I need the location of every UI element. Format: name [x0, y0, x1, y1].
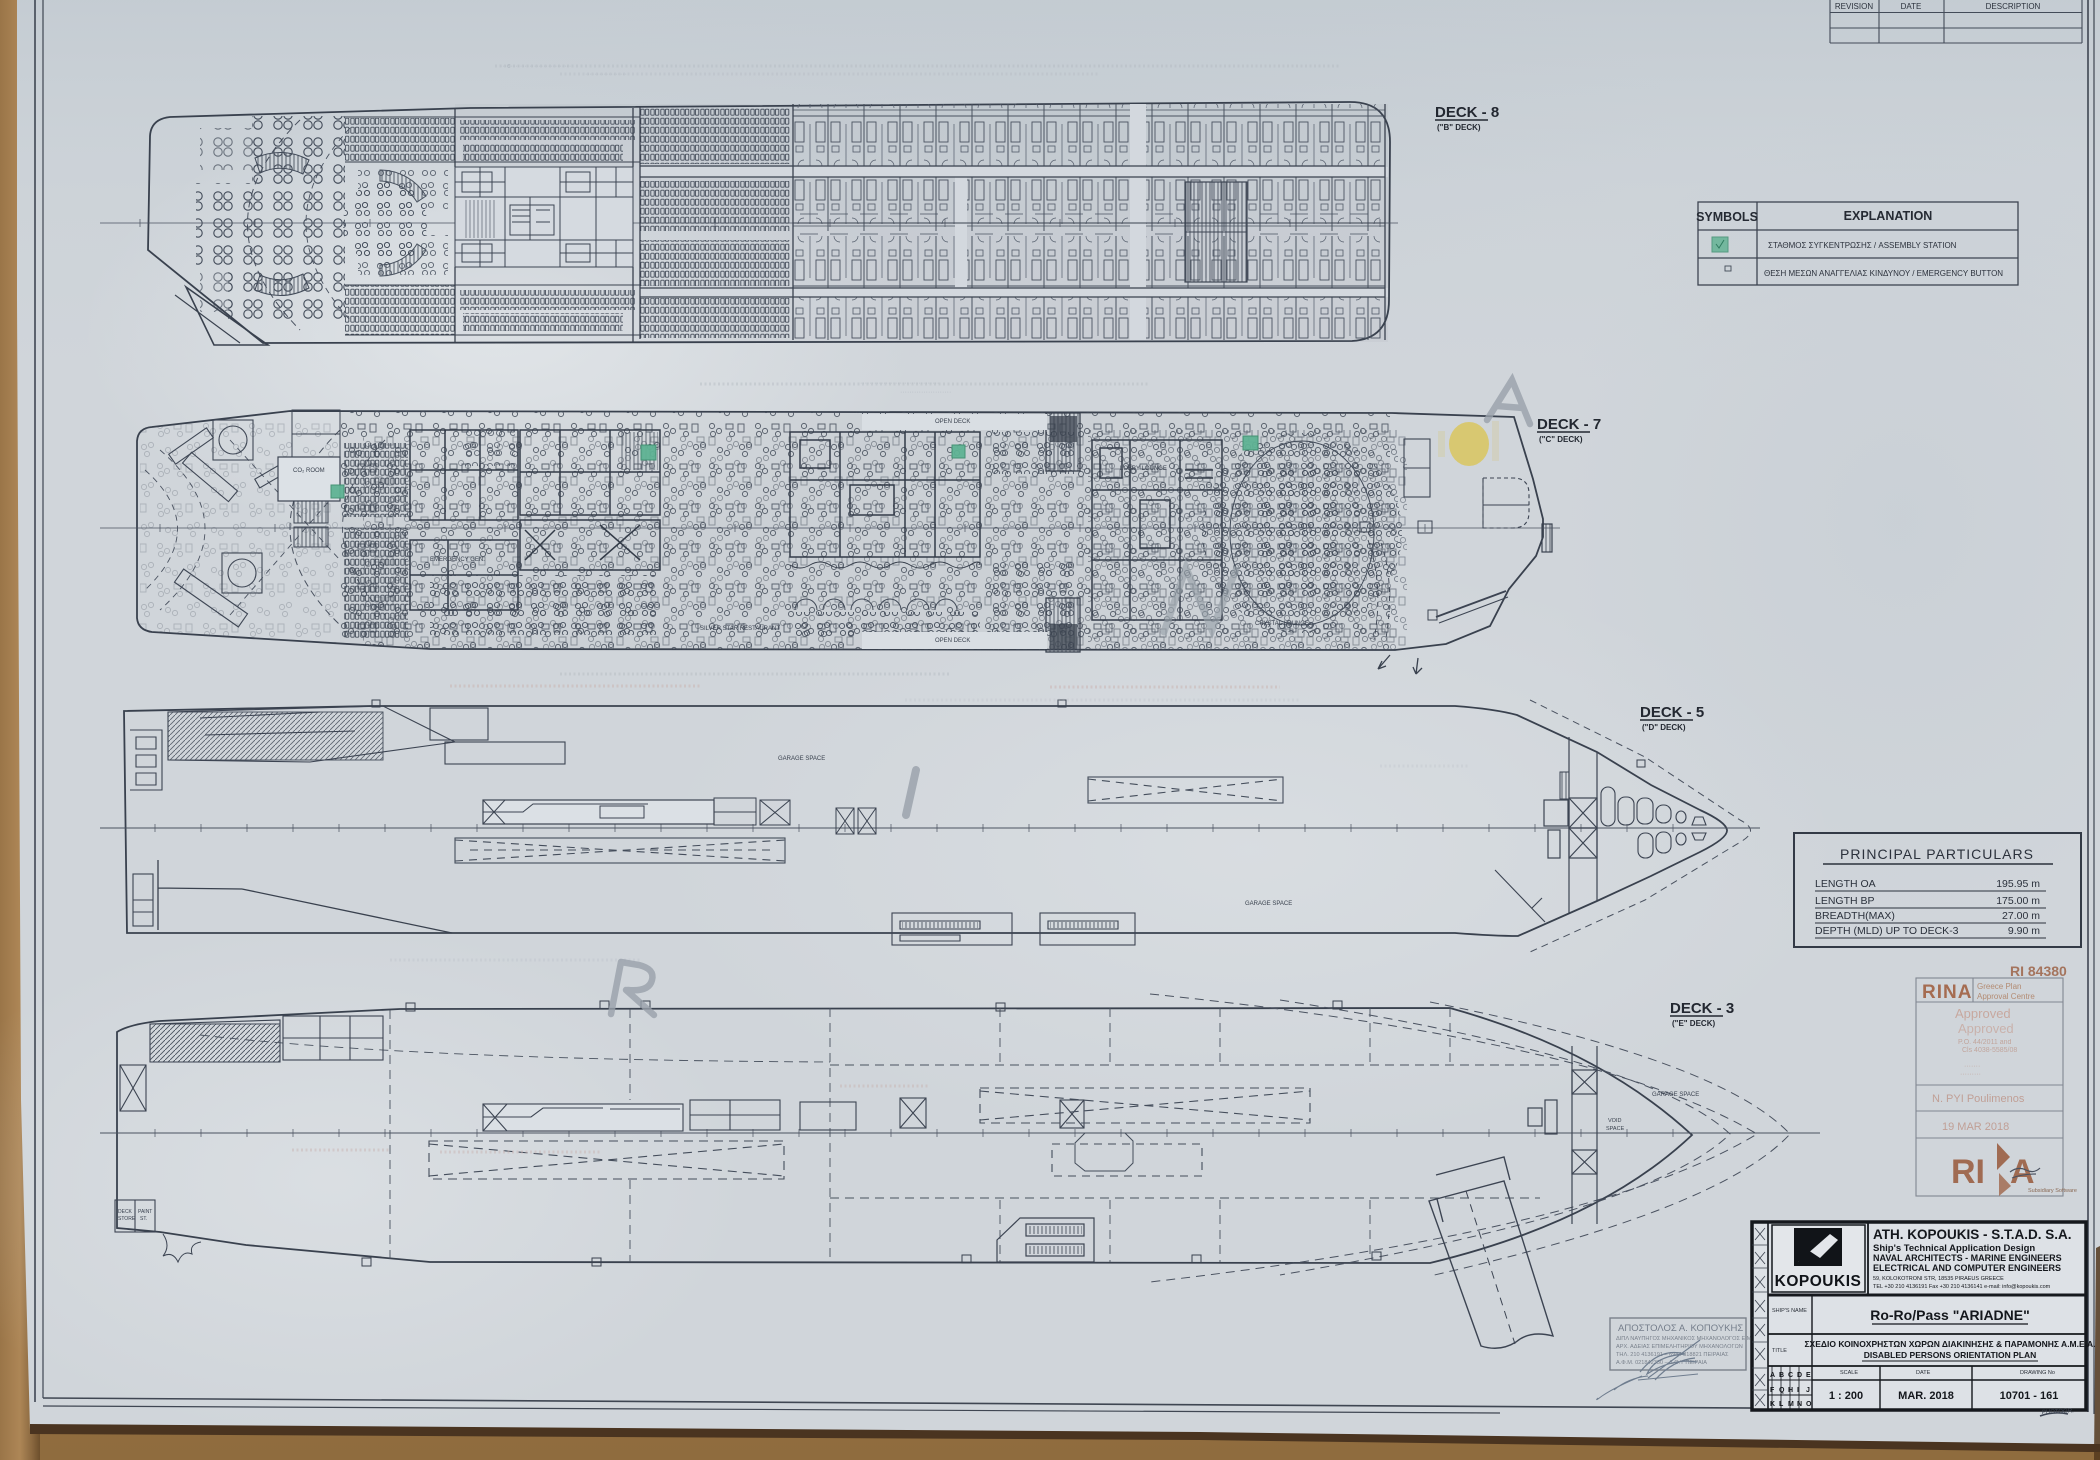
svg-text:REVISION: REVISION [1835, 2, 1873, 11]
svg-text:("E" DECK): ("E" DECK) [1672, 1019, 1715, 1028]
svg-text:M: M [1788, 1401, 1794, 1408]
svg-text:DATE: DATE [1901, 2, 1922, 11]
svg-text:O: O [1806, 1401, 1812, 1408]
svg-text:59, KOLOKOTRONI STR, 18535 PIR: 59, KOLOKOTRONI STR, 18535 PIRAEUS GREEC… [1873, 1276, 2004, 1282]
svg-text:175.00 m: 175.00 m [1996, 895, 2040, 907]
svg-text:ΘΕΣΗ ΜΕΣΩΝ ΑΝΑΓΓΕΛΙΑΣ ΚΙΝΔΥΝΟΥ: ΘΕΣΗ ΜΕΣΩΝ ΑΝΑΓΓΕΛΙΑΣ ΚΙΝΔΥΝΟΥ / EMERGEN… [1764, 269, 2003, 278]
svg-text:CRYSTAL LOUNGE: CRYSTAL LOUNGE [1255, 621, 1309, 627]
svg-text:DECK - 3: DECK - 3 [1670, 1000, 1734, 1017]
svg-text:LENGTH OA: LENGTH OA [1815, 878, 1876, 890]
svg-text:CO₂ ROOM: CO₂ ROOM [293, 468, 325, 474]
svg-text:DECK - 7: DECK - 7 [1537, 416, 1601, 433]
svg-text:DRAWING No: DRAWING No [2020, 1370, 2055, 1376]
svg-text:19 MAR 2018: 19 MAR 2018 [1942, 1121, 2009, 1133]
svg-text:VOID: VOID [1608, 1118, 1621, 1124]
svg-text:OPEN DECK: OPEN DECK [935, 419, 970, 425]
svg-text:EMERGENCY GEN.: EMERGENCY GEN. [430, 557, 485, 563]
svg-text:DECK: DECK [118, 1209, 133, 1215]
svg-text:195.95 m: 195.95 m [1996, 878, 2040, 890]
svg-text:A: A [1770, 1372, 1775, 1379]
svg-text:·······: ······· [1964, 1063, 1980, 1070]
svg-text:DECK - 8: DECK - 8 [1435, 104, 1499, 121]
svg-text:C: C [1788, 1372, 1793, 1379]
svg-text:("C" DECK): ("C" DECK) [1539, 435, 1583, 444]
svg-text:ATH. KOPOUKIS - S.T.A.D. S.A.: ATH. KOPOUKIS - S.T.A.D. S.A. [1873, 1227, 2072, 1242]
svg-text:EXPLANATION: EXPLANATION [1844, 209, 1933, 223]
svg-text:SHIP'S NAME: SHIP'S NAME [1772, 1308, 1807, 1314]
svg-text:P.O. 44/2011 and: P.O. 44/2011 and [1958, 1039, 2012, 1046]
svg-text:SYMBOLS: SYMBOLS [1696, 210, 1758, 224]
svg-text:RI 84380: RI 84380 [2010, 963, 2067, 979]
svg-text:DISABLED PERSONS ORIENTATION P: DISABLED PERSONS ORIENTATION PLAN [1864, 1350, 2037, 1360]
svg-text:Approved: Approved [1955, 1006, 2011, 1021]
svg-text:ELECTRICAL AND COMPUTER ENGINE: ELECTRICAL AND COMPUTER ENGINEERS [1873, 1263, 2061, 1273]
svg-text:ΣΤΑΘΜΟΣ ΣΥΓΚΕΝΤΡΩΣΗΣ / ASSEM: ΣΤΑΘΜΟΣ ΣΥΓΚΕΝΤΡΩΣΗΣ / ASSEMBLY STATION [1768, 241, 1957, 250]
svg-text:I: I [1797, 1387, 1799, 1394]
svg-text:L: L [1779, 1401, 1784, 1408]
svg-text:N. PYI Poulimenos: N. PYI Poulimenos [1932, 1093, 2025, 1105]
svg-text:10701 - 161: 10701 - 161 [2000, 1390, 2059, 1402]
svg-text:GARAGE SPACE: GARAGE SPACE [1245, 901, 1292, 907]
svg-text:B: B [1779, 1372, 1784, 1379]
svg-text:PAINT: PAINT [138, 1209, 152, 1215]
svg-text:PRINCIPAL PARTICULARS: PRINCIPAL PARTICULARS [1840, 846, 2034, 862]
svg-text:DATE: DATE [1916, 1370, 1931, 1376]
svg-text:K: K [1770, 1401, 1775, 1408]
svg-text:ΣΧΕΔΙΟ ΚΟΙΝΟΧΡΗΣΤΩΝ ΧΩΡΩΝ ΔΙΑΚ: ΣΧΕΔΙΟ ΚΟΙΝΟΧΡΗΣΤΩΝ ΧΩΡΩΝ ΔΙΑΚΙΝΗΣΗΣ & Π… [1804, 1339, 2095, 1349]
svg-text:Approved: Approved [1958, 1021, 2014, 1036]
svg-text:27.00 m: 27.00 m [2002, 910, 2040, 922]
svg-text:LENGTH BP: LENGTH BP [1815, 895, 1875, 907]
svg-text:F: F [1770, 1387, 1775, 1394]
svg-text:Approval Centre: Approval Centre [1977, 992, 2035, 1001]
svg-text:E: E [1806, 1372, 1811, 1379]
svg-text:KOPOUKIS: KOPOUKIS [1775, 1273, 1862, 1290]
svg-text:Ro-Ro/Pass "ARIADNE": Ro-Ro/Pass "ARIADNE" [1870, 1307, 2030, 1323]
svg-text:DEPTH (MLD) UP TO DECK-3: DEPTH (MLD) UP TO DECK-3 [1815, 925, 1959, 937]
svg-text:ST.: ST. [140, 1216, 147, 1222]
svg-text:STORE: STORE [118, 1216, 136, 1222]
svg-text:DESCRIPTION: DESCRIPTION [1986, 2, 2041, 11]
svg-text:RINA: RINA [1922, 982, 1972, 1003]
svg-text:GARAGE SPACE: GARAGE SPACE [1652, 1092, 1699, 1098]
svg-text:TEL +30 210 4136191 Fax +30: TEL +30 210 4136191 Fax +30 210 4136141 … [1873, 1284, 2051, 1290]
svg-text:RI: RI [1951, 1153, 1985, 1191]
svg-text:("D" DECK): ("D" DECK) [1642, 723, 1686, 732]
svg-text:Α.Φ.Μ. 021842330 – Δ.Ο.Υ ΠΕΙΡΑ: Α.Φ.Μ. 021842330 – Δ.Ο.Υ ΠΕΙΡΑΙΑ [1616, 1360, 1707, 1366]
svg-text:SILVER STAR RESTAURANT: SILVER STAR RESTAURANT [700, 626, 780, 632]
svg-text:LOBBY LOUNGE: LOBBY LOUNGE [1120, 466, 1167, 472]
svg-text:MAR. 2018: MAR. 2018 [1898, 1390, 1954, 1402]
svg-text:DECK - 5: DECK - 5 [1640, 704, 1704, 721]
svg-text:NAVAL ARCHITECTS - MARINE ENG: NAVAL ARCHITECTS - MARINE ENGINEERS [1873, 1253, 2062, 1263]
svg-text:·········: ········· [1960, 1071, 1981, 1078]
svg-text:Greece Plan: Greece Plan [1977, 982, 2021, 991]
svg-text:······················: ······················ [900, 389, 951, 396]
svg-text:OPEN DECK: OPEN DECK [935, 638, 970, 644]
svg-text:ΑΠΟΣΤΟΛΟΣ Α. ΚΟΠΟΥΚΗΣ: ΑΠΟΣΤΟΛΟΣ Α. ΚΟΠΟΥΚΗΣ [1618, 1323, 1743, 1334]
svg-text:H: H [1788, 1387, 1793, 1394]
svg-text:Cls 4038-5585/08: Cls 4038-5585/08 [1962, 1047, 2017, 1054]
svg-text:9.90 m: 9.90 m [2008, 925, 2040, 937]
svg-text:SPACE: SPACE [1606, 1126, 1625, 1132]
svg-text:Q: Q [1779, 1387, 1785, 1394]
svg-text:D: D [1797, 1372, 1802, 1379]
svg-text:("B" DECK): ("B" DECK) [1437, 123, 1481, 132]
svg-text:ΑΡΧ. ΑΔΕΙΑΣ ΕΠΙΜΕΛΗΤΗΡΙΟΥ ΜΗΧΑ: ΑΡΧ. ΑΔΕΙΑΣ ΕΠΙΜΕΛΗΤΗΡΙΟΥ ΜΗΧΑΝΟΛΟΓΩΝ [1616, 1344, 1743, 1350]
svg-text:1 : 200: 1 : 200 [1829, 1390, 1863, 1402]
svg-text:GARAGE SPACE: GARAGE SPACE [778, 756, 825, 762]
svg-text:J: J [1806, 1387, 1810, 1394]
svg-text:TITLE: TITLE [1772, 1348, 1787, 1354]
svg-text:Subsidiary Software: Subsidiary Software [2028, 1188, 2077, 1194]
svg-text:SCALE: SCALE [1840, 1370, 1858, 1376]
svg-text:ΔΙΠΛ ΝΑΥΠΗΓΟΣ ΜΗΧΑΝΙΚΟΣ ΜΗΧΑΝΟ: ΔΙΠΛ ΝΑΥΠΗΓΟΣ ΜΗΧΑΝΙΚΟΣ ΜΗΧΑΝΟΛΟΓΟΣ Ε.Μ.… [1616, 1336, 1759, 1342]
svg-text:N: N [1797, 1401, 1802, 1408]
svg-text:BREADTH(MAX): BREADTH(MAX) [1815, 910, 1895, 922]
